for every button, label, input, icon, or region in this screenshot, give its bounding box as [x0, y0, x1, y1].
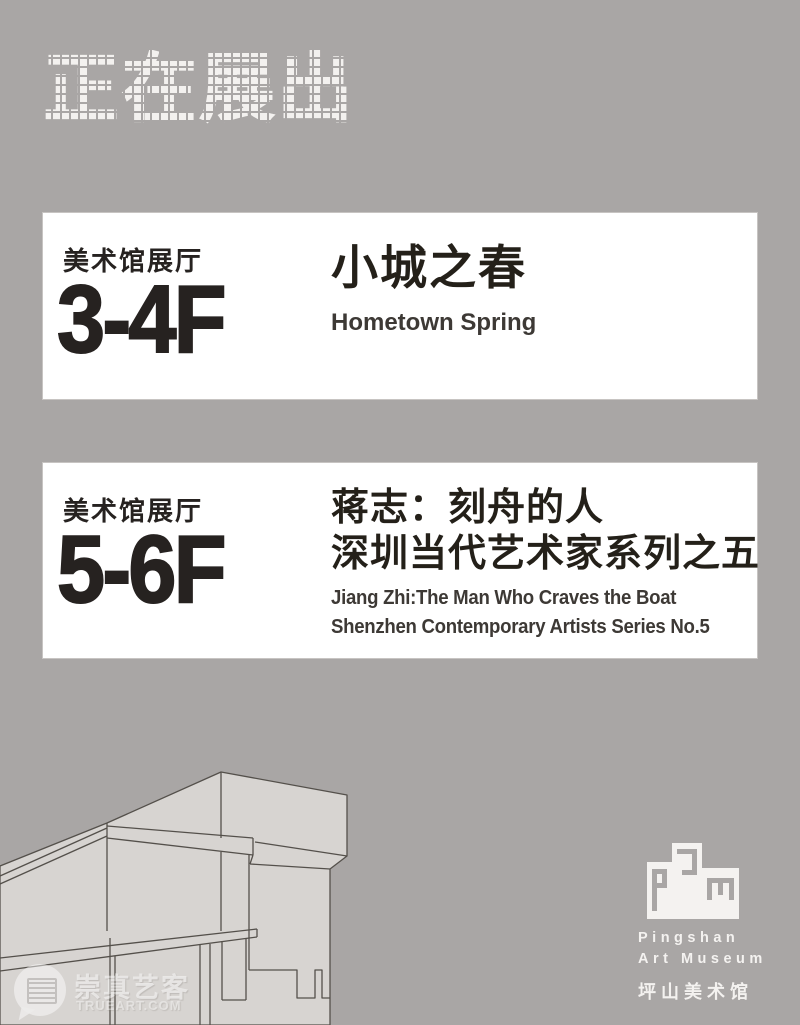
- exhibition-card-2: 美术馆展厅 5-6F 蒋志：刻舟的人 深圳当代艺术家系列之五 Jiang Zhi…: [42, 462, 758, 659]
- pam-logo: [640, 843, 740, 919]
- watermark-subtext: TRUEART.COM: [76, 998, 182, 1013]
- page-title: 正在展出: [44, 48, 356, 129]
- exhibition-title-en: Hometown Spring: [331, 309, 751, 337]
- floor-label: 5-6F: [57, 515, 224, 625]
- exhibition-title-en-line1: Jiang Zhi:The Man Who Craves the Boat: [331, 584, 722, 613]
- museum-wordmark: Pingshan Art Museum 坪山美术馆: [638, 928, 767, 1004]
- museum-name-cn: 坪山美术馆: [638, 978, 767, 1004]
- exhibition-info: 蒋志：刻舟的人 深圳当代艺术家系列之五 Jiang Zhi:The Man Wh…: [331, 485, 751, 642]
- exhibition-card-1: 美术馆展厅 3-4F 小城之春 Hometown Spring: [42, 212, 758, 400]
- exhibition-info: 小城之春 Hometown Spring: [331, 241, 751, 337]
- floor-label: 3-4F: [57, 265, 224, 375]
- watermark-document-icon: [27, 978, 57, 1004]
- exhibition-title-cn-line2: 深圳当代艺术家系列之五: [331, 531, 751, 577]
- exhibition-title-cn-line1: 蒋志：刻舟的人: [331, 485, 751, 531]
- exhibition-title-en-block: Jiang Zhi:The Man Who Craves the Boat Sh…: [331, 584, 751, 642]
- museum-name-en-line1: Pingshan: [638, 928, 767, 949]
- museum-name-en-line2: Art Museum: [638, 949, 767, 970]
- exhibition-title-cn: 小城之春: [331, 241, 751, 295]
- page-title-text: 正在展出: [44, 48, 356, 129]
- watermark-bubble-icon: [14, 964, 66, 1016]
- exhibition-title-en-line2: Shenzhen Contemporary Artists Series No.…: [331, 613, 722, 642]
